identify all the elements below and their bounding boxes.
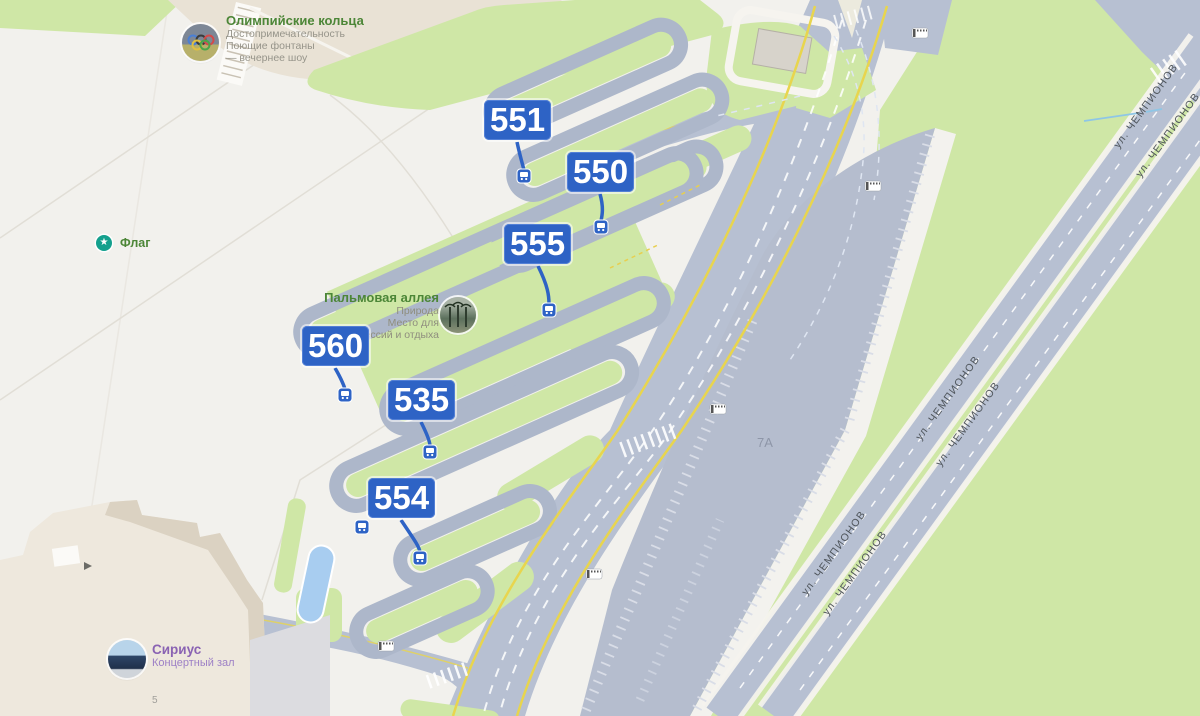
poi-subtitle: Концертный зал — [152, 657, 235, 669]
transit-stop-icon[interactable] — [517, 169, 531, 183]
parking-lot-label: 7А — [757, 435, 773, 450]
parking-marker-551[interactable]: 551 — [484, 100, 551, 140]
barrier-icon — [912, 28, 928, 38]
parking-marker-560[interactable]: 560 — [302, 326, 369, 366]
transit-stop-icon[interactable] — [413, 551, 427, 565]
barrier-icon — [586, 569, 602, 579]
transit-stop-icon[interactable] — [594, 220, 608, 234]
barrier-icon — [710, 404, 726, 414]
poi-flag[interactable]: Флаг — [120, 236, 150, 250]
poi-title: Олимпийские кольца — [226, 13, 364, 28]
parking-marker-535[interactable]: 535 — [388, 380, 455, 420]
flag-star-icon[interactable]: ★ — [96, 235, 112, 251]
poi-category: Достопримечательность — [226, 28, 364, 40]
poi-title: Пальмовая аллея — [317, 290, 439, 305]
map-base-layer — [0, 0, 1200, 716]
poi-olympic-rings[interactable]: Олимпийские кольца Достопримечательность… — [226, 13, 364, 64]
marker-label: 551 — [490, 101, 545, 138]
marker-label: 555 — [510, 225, 565, 262]
poi-title: Сириус — [152, 642, 235, 657]
marker-label: 535 — [394, 381, 449, 418]
barrier-icon — [865, 181, 881, 191]
poi-category: Природа — [317, 305, 439, 317]
parking-marker-555[interactable]: 555 — [504, 224, 571, 264]
poi-title: Флаг — [120, 236, 150, 250]
parking-marker-550[interactable]: 550 — [567, 152, 634, 192]
barrier-icon — [378, 641, 394, 651]
marker-label: 560 — [308, 327, 363, 364]
poi-line: Поющие фонтаны — [226, 40, 364, 52]
marker-label: 554 — [374, 479, 429, 516]
map-canvas[interactable]: 551 550 555 560 535 554 Олимпийские коль… — [0, 0, 1200, 716]
transit-stop-icon[interactable] — [355, 520, 369, 534]
transit-stop-icon[interactable] — [542, 303, 556, 317]
transit-stop-icon[interactable] — [423, 445, 437, 459]
poi-line: — вечернее шоу — [226, 52, 364, 64]
olympic-rings-photo-icon[interactable] — [182, 24, 219, 61]
parking-marker-554[interactable]: 554 — [368, 478, 435, 518]
palm-alley-photo-icon[interactable] — [440, 297, 476, 333]
marker-label: 550 — [573, 153, 628, 190]
building-number-label: 5 — [152, 695, 158, 706]
transit-stop-icon[interactable] — [338, 388, 352, 402]
sirius-photo-icon[interactable] — [108, 640, 146, 678]
star-glyph: ★ — [96, 235, 112, 251]
poi-sirius[interactable]: Сириус Концертный зал — [152, 642, 235, 669]
